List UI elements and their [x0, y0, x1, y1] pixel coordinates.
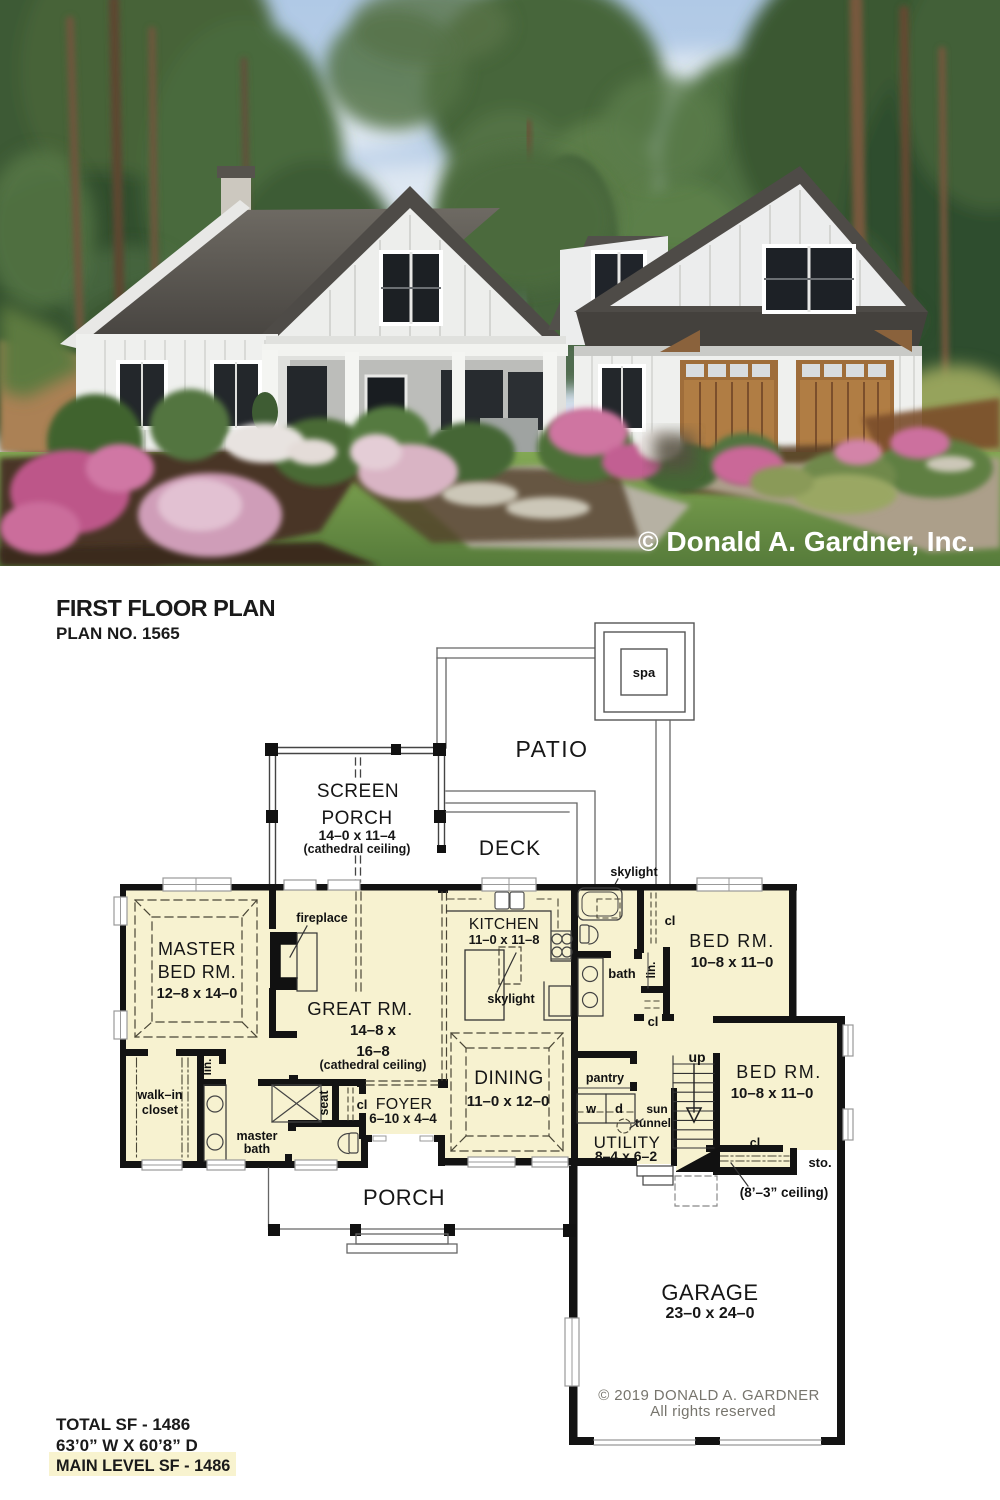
svg-text:63’0” W X 60’8” D: 63’0” W X 60’8” D	[56, 1436, 198, 1455]
svg-text:d: d	[615, 1101, 623, 1116]
svg-text:pantry: pantry	[586, 1071, 624, 1085]
svg-text:6–10 x 4–4: 6–10 x 4–4	[369, 1111, 437, 1126]
svg-text:DECK: DECK	[479, 837, 541, 860]
svg-text:KITCHEN: KITCHEN	[469, 916, 539, 933]
svg-text:walk–in: walk–in	[136, 1088, 182, 1102]
svg-text:lin.: lin.	[202, 1059, 214, 1076]
svg-text:GARAGE: GARAGE	[661, 1280, 758, 1305]
svg-text:(8’–3” ceiling): (8’–3” ceiling)	[740, 1185, 829, 1200]
svg-text:cl: cl	[648, 1014, 659, 1029]
svg-text:sun: sun	[646, 1102, 667, 1116]
svg-text:(cathedral ceiling): (cathedral ceiling)	[320, 1058, 427, 1072]
svg-text:MASTER: MASTER	[158, 939, 236, 959]
svg-text:PORCH: PORCH	[321, 808, 392, 829]
svg-text:skylight: skylight	[487, 992, 535, 1006]
svg-text:skylight: skylight	[610, 865, 658, 879]
svg-text:DINING: DINING	[474, 1068, 544, 1089]
svg-text:10–8 x 11–0: 10–8 x 11–0	[691, 954, 774, 971]
svg-text:8–4 x 6–2: 8–4 x 6–2	[595, 1148, 657, 1164]
svg-text:© 2019 DONALD A. GARDNER: © 2019 DONALD A. GARDNER	[598, 1387, 820, 1404]
svg-text:TOTAL SF - 1486: TOTAL SF - 1486	[56, 1415, 190, 1434]
svg-text:12–8 x 14–0: 12–8 x 14–0	[157, 986, 238, 1002]
svg-text:PORCH: PORCH	[363, 1185, 445, 1210]
svg-text:PLAN NO. 1565: PLAN NO. 1565	[56, 624, 180, 643]
svg-text:23–0 x 24–0: 23–0 x 24–0	[666, 1305, 755, 1322]
svg-text:seat: seat	[317, 1090, 331, 1116]
svg-text:spa: spa	[633, 665, 656, 680]
svg-text:FIRST FLOOR PLAN: FIRST FLOOR PLAN	[56, 595, 275, 621]
svg-text:cl: cl	[665, 913, 676, 928]
svg-text:GREAT RM.: GREAT RM.	[307, 998, 413, 1019]
svg-text:PATIO: PATIO	[515, 736, 588, 762]
svg-text:11–0 x 12–0: 11–0 x 12–0	[467, 1093, 550, 1110]
svg-text:closet: closet	[142, 1103, 179, 1117]
svg-text:BED RM.: BED RM.	[158, 962, 237, 982]
svg-text:fireplace: fireplace	[296, 911, 347, 925]
svg-text:SCREEN: SCREEN	[317, 781, 399, 802]
svg-text:cl: cl	[750, 1136, 760, 1150]
svg-text:up: up	[688, 1049, 705, 1065]
svg-text:bath: bath	[608, 966, 636, 981]
svg-text:BED RM.: BED RM.	[689, 931, 775, 951]
svg-text:10–8 x 11–0: 10–8 x 11–0	[731, 1085, 814, 1102]
svg-text:© Donald A. Gardner, Inc.: © Donald A. Gardner, Inc.	[638, 526, 975, 557]
svg-text:MAIN LEVEL SF - 1486: MAIN LEVEL SF - 1486	[56, 1457, 230, 1475]
svg-text:bath: bath	[244, 1142, 270, 1156]
svg-text:sto.: sto.	[808, 1155, 831, 1170]
svg-text:w: w	[585, 1101, 597, 1116]
svg-text:cl: cl	[357, 1097, 368, 1112]
svg-text:tunnel: tunnel	[635, 1116, 671, 1130]
svg-text:master: master	[237, 1129, 278, 1143]
svg-text:11–0 x 11–8: 11–0 x 11–8	[469, 932, 540, 947]
svg-text:All rights reserved: All rights reserved	[650, 1403, 776, 1420]
svg-text:BED RM.: BED RM.	[736, 1062, 822, 1082]
svg-text:(cathedral ceiling): (cathedral ceiling)	[304, 842, 411, 856]
svg-text:14–8 x: 14–8 x	[350, 1022, 397, 1039]
svg-text:14–0 x 11–4: 14–0 x 11–4	[318, 827, 395, 843]
